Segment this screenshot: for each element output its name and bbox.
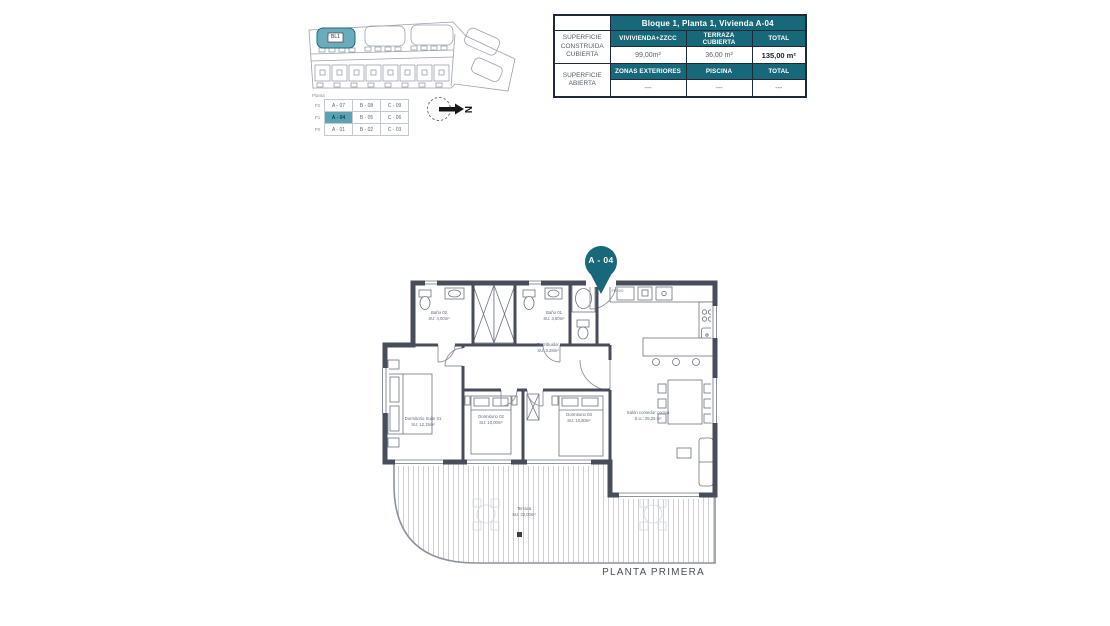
surface-table-title: Bloque 1, Planta 1, Vivienda A-04 [610, 15, 806, 31]
unit-cell: C - 06 [381, 112, 409, 124]
room-label-distribuidor: Distribuidor SU: 3,28m² [518, 342, 578, 353]
value-cell: 99,00m² [610, 47, 686, 64]
unit-cell: B - 02 [353, 124, 381, 136]
room-label-salon: Salón comedor cocina S.U.: 25,25 m² [616, 410, 680, 421]
column-header: PISCINA [686, 64, 752, 80]
covered-group-label: SUPERFICIE CONSTRUIDA CUBIERTA [554, 31, 610, 64]
table-row: SUPERFICIE CONSTRUIDA CUBIERTA VIVIVIEND… [554, 31, 806, 47]
value-cell: --- [610, 80, 686, 98]
corner-cell [554, 15, 610, 31]
unit-matrix: Planta P2 A - 07 B - 08 C - 09 P1 A - 04… [311, 93, 409, 136]
surface-table: Bloque 1, Planta 1, Vivienda A-04 SUPERF… [553, 14, 807, 98]
value-cell: --- [686, 80, 752, 98]
floor-plan: A - 04 FRIGO Baño 02 SU: 4,00m² Baño 01 … [381, 238, 733, 583]
north-arrow-icon: N [425, 92, 477, 126]
fridge-label: FRIGO [605, 289, 630, 293]
building-label: BL1 [328, 33, 343, 42]
pin-unit-label: A - 04 [577, 255, 625, 265]
room-label-bano1: Baño 01 SU: 3,60m² [524, 310, 584, 321]
unit-cell: B - 08 [353, 100, 381, 112]
room-label-dorm1: Dormitorio Suite 01 SU: 12,15m² [393, 416, 453, 427]
value-cell: 36,00 m² [686, 47, 752, 64]
total-value-cell: 135,00 m² [752, 47, 806, 64]
unit-cell: A - 01 [325, 124, 353, 136]
unit-cell: C - 09 [381, 100, 409, 112]
column-header: ZONAS EXTERIORES [610, 64, 686, 80]
open-group-label: SUPERFICIE ABIERTA [554, 64, 610, 98]
level-label: P2 [311, 100, 325, 112]
table-row: P0 A - 01 B - 02 C - 03 [311, 124, 409, 136]
unit-cell: C - 03 [381, 124, 409, 136]
room-label-dorm2: Dormitorio 02 SU: 10,00m² [461, 414, 521, 425]
plan-caption: PLANTA PRIMERA [586, 567, 721, 578]
unit-cell: A - 07 [325, 100, 353, 112]
column-header: TERRAZA CUBIERTA [686, 31, 752, 47]
value-cell: --- [752, 80, 806, 98]
room-label-bano2: Baño 02 SU: 4,00m² [409, 310, 469, 321]
site-plan-map [303, 12, 521, 94]
column-header: TOTAL [752, 64, 806, 80]
room-label-terraza: Terraza SU: 32,00m² [494, 506, 554, 517]
table-row: P2 A - 07 B - 08 C - 09 [311, 100, 409, 112]
floor-plan-drawing [381, 238, 733, 583]
level-label: P0 [311, 124, 325, 136]
unit-cell: B - 05 [353, 112, 381, 124]
room-label-dorm3: Dormitorio 03 SU: 10,80m² [549, 412, 609, 423]
site-plan: BL1 [303, 12, 521, 94]
table-row: P1 A - 04 B - 05 C - 06 [311, 112, 409, 124]
table-row: Bloque 1, Planta 1, Vivienda A-04 [554, 15, 806, 31]
compass-letter: N [462, 106, 473, 113]
table-row: SUPERFICIE ABIERTA ZONAS EXTERIORES PISC… [554, 64, 806, 80]
column-header: VIVIVIENDA+ZZCC [610, 31, 686, 47]
level-label: P1 [311, 112, 325, 124]
unit-matrix-caption: Planta [312, 93, 409, 98]
unit-cell-highlighted: A - 04 [325, 112, 353, 124]
column-header: TOTAL [752, 31, 806, 47]
